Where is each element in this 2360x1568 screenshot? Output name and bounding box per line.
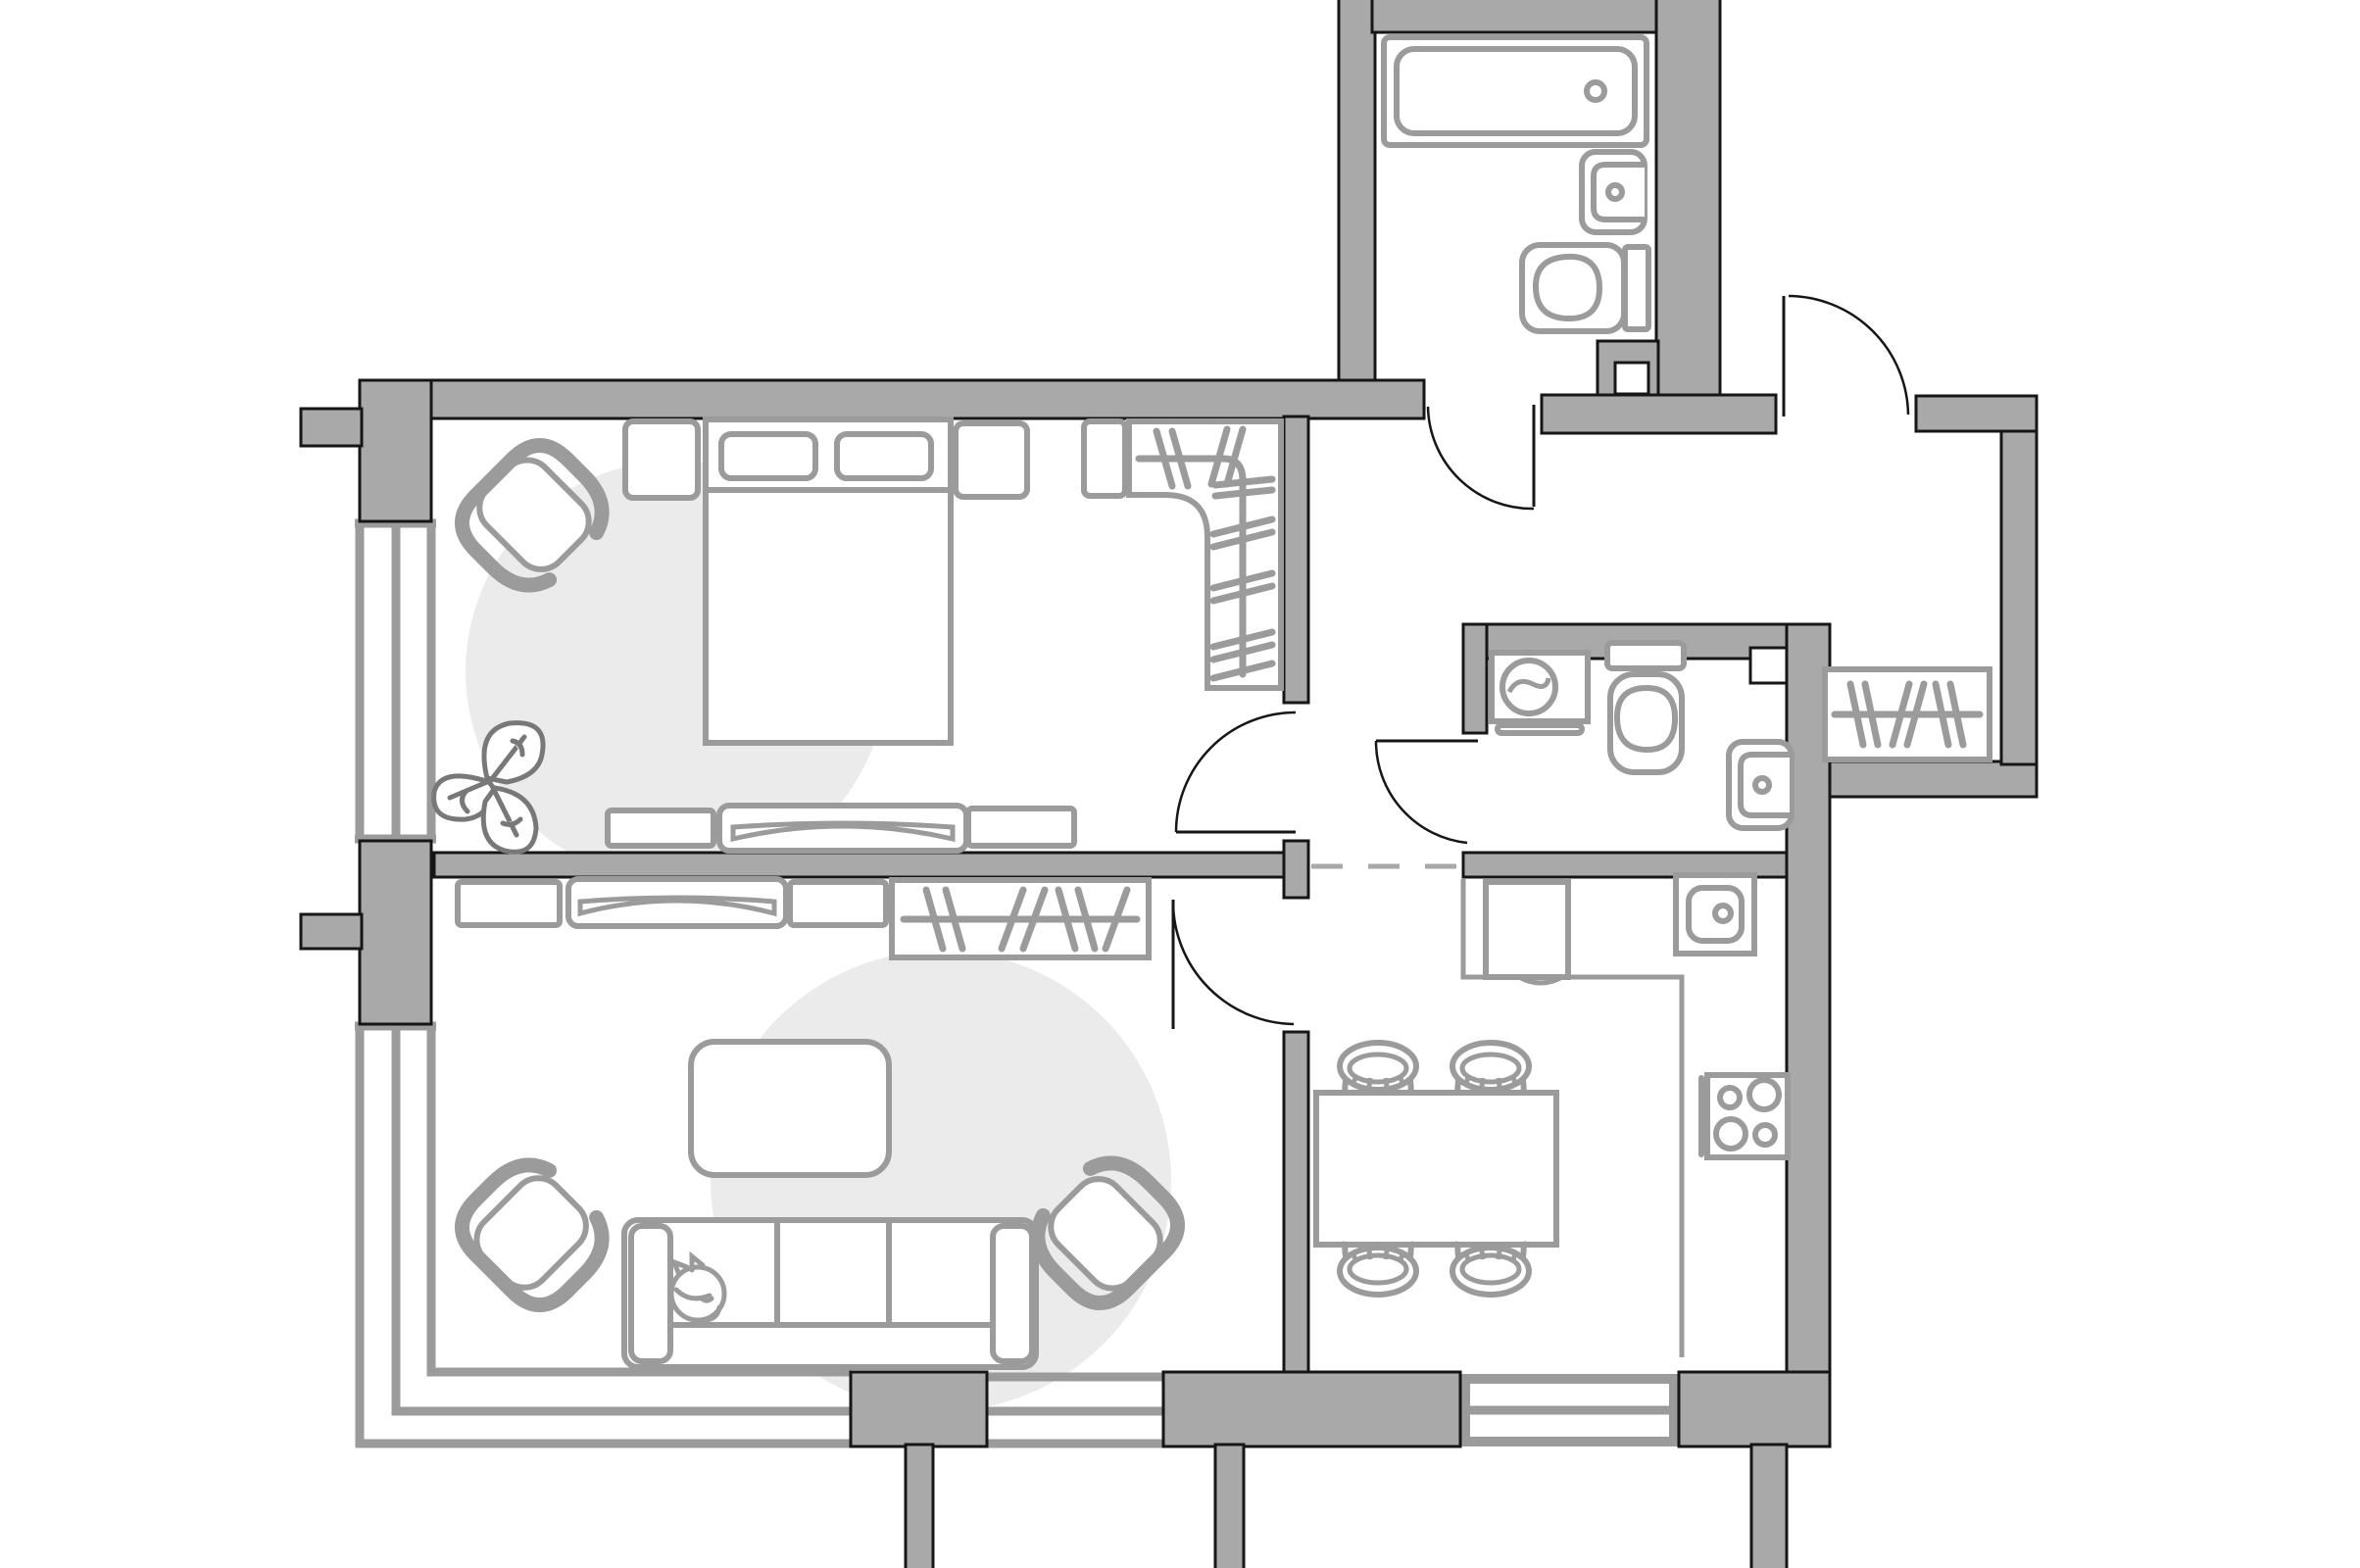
- left-top-stub: [301, 409, 362, 446]
- wc-bottom-wall: [1463, 853, 1830, 877]
- dining-table: [1316, 1093, 1556, 1245]
- living-tv-stand-row: [458, 879, 1149, 957]
- bathroom-door: [1428, 405, 1534, 509]
- kitchen-divider-wall: [1284, 1032, 1308, 1376]
- bottom-stem-right: [1751, 1445, 1787, 1568]
- hall-top-wall: [1542, 395, 1776, 433]
- central-wall: [434, 853, 1284, 877]
- pillow-left: [721, 434, 815, 478]
- cabinet: [790, 882, 886, 925]
- fridge-cabinet: [1486, 882, 1568, 977]
- wc-toilet: [1607, 643, 1684, 772]
- wc: [1492, 643, 1792, 828]
- coat-rack: [1825, 669, 1990, 759]
- bathroom-top-wall: [1372, 0, 1656, 32]
- bathroom-left-wall: [1339, 0, 1375, 418]
- wc-basin: [1729, 742, 1792, 828]
- entry-right-wall: [1916, 396, 2037, 431]
- wardrobe-shelf: [892, 880, 1149, 957]
- living-armchair-left: [448, 1149, 618, 1319]
- left-mid-stub: [301, 914, 362, 949]
- hob-4-burners: [1701, 1075, 1788, 1157]
- washing-machine: [1492, 653, 1588, 733]
- sofa: [624, 1220, 1036, 1367]
- cabinet: [968, 808, 1074, 846]
- stool-1: [1340, 1043, 1416, 1096]
- wc-duct-notch: [1750, 648, 1788, 683]
- bedroom-door: [1176, 712, 1296, 832]
- kitchen-sink: [1676, 875, 1754, 954]
- cabinet: [608, 810, 713, 846]
- central-wall-stub: [1284, 841, 1308, 898]
- living-room-door: [1173, 900, 1294, 1029]
- sofa-armrest-right: [993, 1226, 1032, 1361]
- left-corner-pier: [360, 380, 431, 521]
- bedroom-window: [355, 523, 436, 841]
- floor-plan-page: [0, 0, 2360, 1568]
- stool-3: [1340, 1242, 1416, 1295]
- nightstand-right: [956, 423, 1027, 497]
- bathroom-right-wall: [1656, 0, 1720, 397]
- bottom-pier-mid: [1163, 1372, 1460, 1446]
- bathroom: [1384, 37, 1648, 331]
- bedroom-east-wall: [1284, 416, 1308, 703]
- stool-2: [1452, 1043, 1529, 1096]
- cabinet: [458, 882, 560, 925]
- kitchen-window: [1465, 1379, 1674, 1442]
- stool-4: [1452, 1242, 1529, 1295]
- bedside-cabinet: [1084, 421, 1125, 496]
- coffee-table: [691, 1042, 889, 1175]
- wc-door: [1376, 741, 1478, 843]
- entry-door: [1784, 296, 1908, 416]
- bedroom-tv-stand-row: [608, 806, 1074, 851]
- nightstand-left: [625, 421, 698, 498]
- bathtub: [1384, 37, 1647, 145]
- left-mid-pier: [360, 841, 431, 1024]
- bottom-pier-right: [1679, 1372, 1830, 1446]
- sofa-armrest-left: [631, 1226, 670, 1361]
- closet-right-wall: [2001, 419, 2037, 764]
- kitchen: [1316, 875, 1788, 1357]
- top-exterior-wall: [360, 380, 1424, 418]
- corner-wardrobe: [1129, 421, 1281, 688]
- floor-plan-canvas: [0, 0, 2360, 1568]
- bathroom-duct-notch: [1615, 363, 1648, 394]
- bottom-stem-left: [906, 1445, 933, 1568]
- closet-bottom-wall: [1830, 761, 2037, 797]
- bath-toilet: [1522, 245, 1648, 331]
- bottom-pier-left: [851, 1372, 987, 1446]
- double-bed: [706, 419, 951, 743]
- bottom-stem-mid: [1215, 1445, 1244, 1568]
- bath-basin: [1582, 152, 1645, 232]
- wc-left-wall: [1463, 624, 1487, 733]
- pillow-right: [837, 434, 931, 478]
